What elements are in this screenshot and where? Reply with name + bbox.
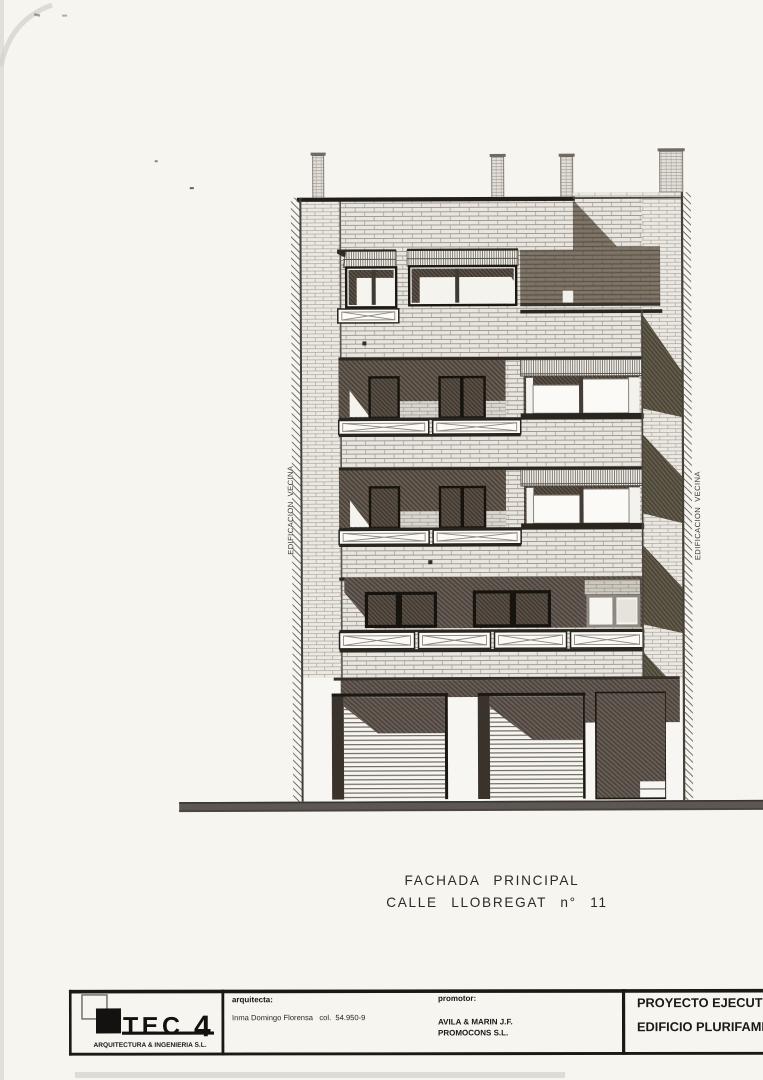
svg-text:Inma Domingo Florensa col.: Inma Domingo Florensa col. 54.950-9 [232,1013,365,1022]
svg-text:EDIFICIO PLURIFAMILI: EDIFICIO PLURIFAMILI [637,1019,763,1034]
svg-text:promotor:: promotor: [438,994,476,1003]
svg-text:CALLE LLOBREGAT n° 11: CALLE LLOBREGAT n° 11 [386,895,608,910]
svg-text:EDIFICACION VECINA: EDIFICACION VECINA [286,465,295,555]
svg-text:EDIFICACION VECINA: EDIFICACION VECINA [693,471,702,561]
svg-text:TEC: TEC [123,1012,184,1040]
svg-text:4: 4 [194,1010,211,1043]
svg-text:arquitecta:: arquitecta: [232,995,273,1004]
svg-text:PROYECTO EJECUTIVO: PROYECTO EJECUTIVO [637,995,763,1010]
svg-text:AVILA & MARIN J.F.: AVILA & MARIN J.F. [438,1017,513,1026]
svg-text:PROMOCONS S.L.: PROMOCONS S.L. [438,1028,508,1037]
svg-text:FACHADA PRINCIPAL: FACHADA PRINCIPAL [405,873,580,888]
svg-text:ARQUITECTURA & INGENIERIA S.L.: ARQUITECTURA & INGENIERIA S.L. [93,1042,206,1049]
